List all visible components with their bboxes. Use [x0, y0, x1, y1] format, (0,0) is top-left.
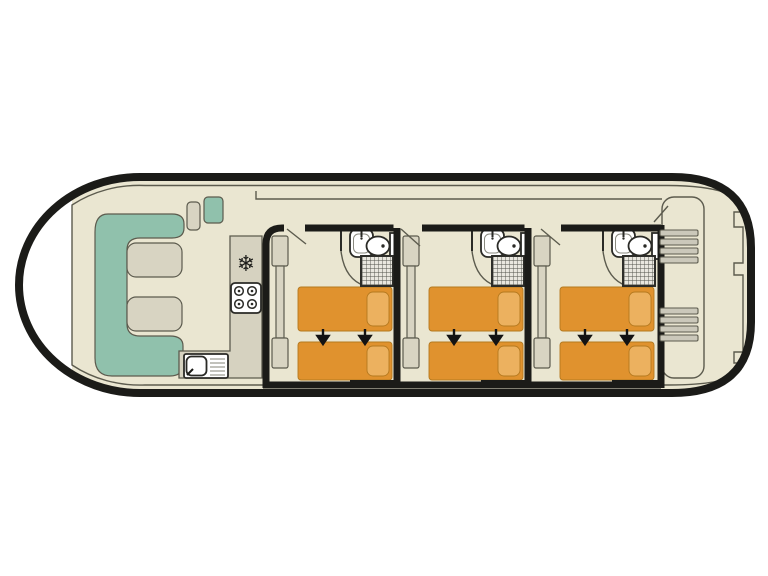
lounge-table-bottom [127, 297, 182, 331]
boat-floor-plan: ❄ [0, 0, 768, 576]
fridge-snowflake-icon: ❄ [237, 252, 255, 277]
galley-sink-icon [184, 354, 228, 378]
deck-plan-svg: ❄ [0, 0, 768, 576]
stove-icon [231, 283, 261, 313]
helm-seat-teal [204, 197, 223, 223]
helm-seat [187, 202, 200, 230]
lounge-table-top [127, 243, 182, 277]
